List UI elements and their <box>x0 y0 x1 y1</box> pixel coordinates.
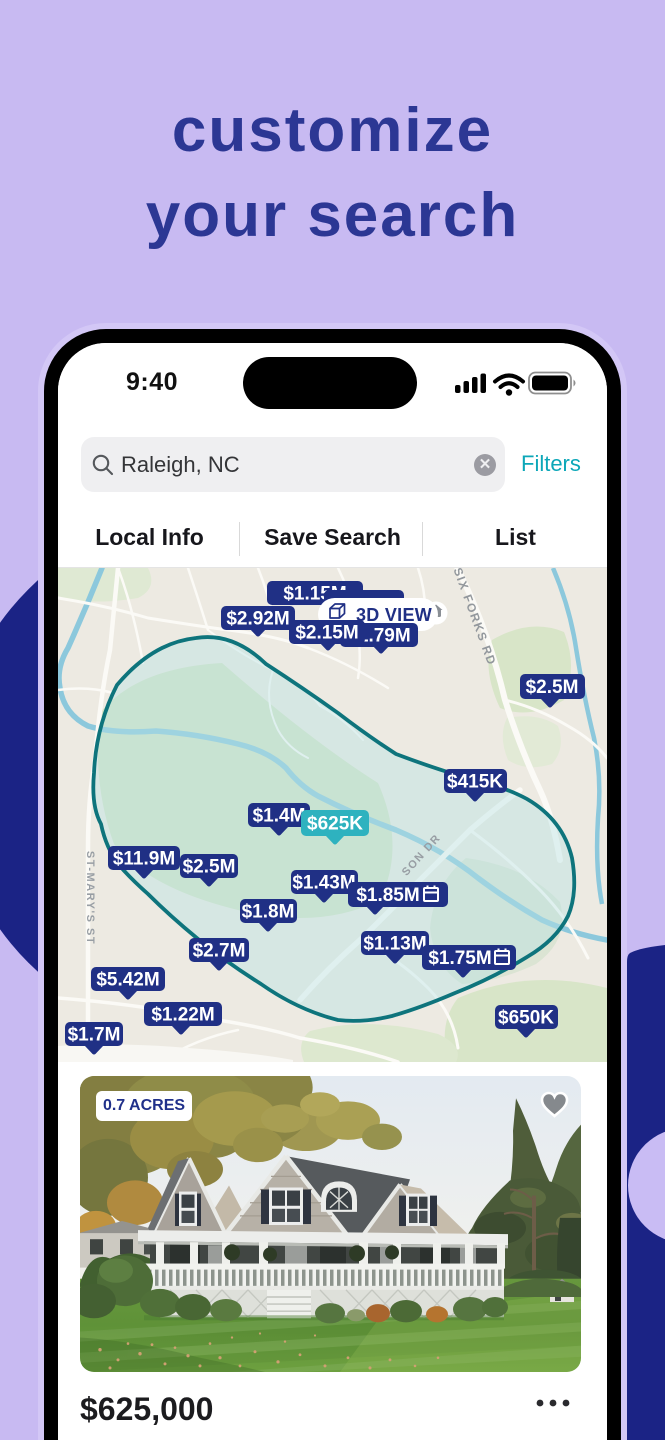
svg-text:$2.92M: $2.92M <box>226 609 289 630</box>
svg-text:$1.7M: $1.7M <box>68 1025 121 1046</box>
svg-text:$1.85M: $1.85M <box>356 885 419 906</box>
svg-text:$2.5M: $2.5M <box>526 677 579 698</box>
svg-text:$1.43M: $1.43M <box>292 873 355 894</box>
svg-text:$1.8M: $1.8M <box>242 902 295 923</box>
svg-text:3D VIEW: 3D VIEW <box>356 605 432 625</box>
svg-text:$650K: $650K <box>498 1008 554 1029</box>
svg-text:$2.15M: $2.15M <box>295 623 358 644</box>
svg-text:$1.75M: $1.75M <box>428 948 491 969</box>
svg-text:$415K: $415K <box>447 772 503 793</box>
svg-text:$1.13M: $1.13M <box>363 934 426 955</box>
svg-text:$2.7M: $2.7M <box>193 941 246 962</box>
svg-text:$625K: $625K <box>307 814 363 835</box>
svg-text:$2.5M: $2.5M <box>183 857 236 878</box>
svg-text:$1.4M: $1.4M <box>253 806 306 827</box>
svg-text:ST-MARY'S ST: ST-MARY'S ST <box>84 851 96 945</box>
svg-text:$1.22M: $1.22M <box>151 1005 214 1026</box>
svg-text:$11.9M: $11.9M <box>113 849 175 870</box>
svg-text:$5.42M: $5.42M <box>96 970 159 991</box>
